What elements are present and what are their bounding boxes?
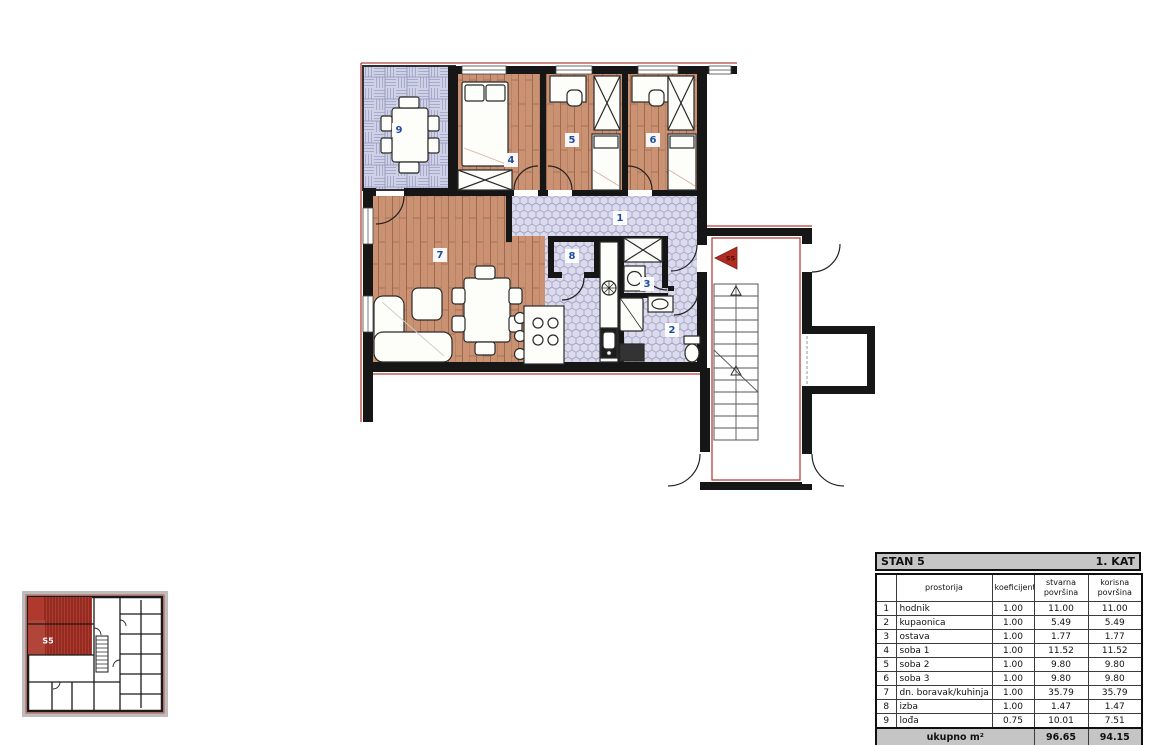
cell: 1.00 xyxy=(992,644,1034,658)
wardrobe-room4 xyxy=(458,170,512,190)
svg-text:7: 7 xyxy=(437,250,444,261)
single-bed-room5 xyxy=(592,134,620,190)
main-floor-plan: S5 1 2 3 4 5 xyxy=(361,63,875,490)
table-row: 1 hodnik 1.00 11.00 11.00 xyxy=(876,602,1142,616)
cell: 7 xyxy=(876,686,896,700)
screenshot-root: S5 1 2 3 4 5 xyxy=(0,0,1164,745)
cell: kupaonica xyxy=(896,616,992,630)
mini-plan-unit-label: S5 xyxy=(42,637,54,646)
room-label-5: 5 xyxy=(565,133,579,147)
total-label: ukupno m² xyxy=(876,728,1034,745)
cell: soba 1 xyxy=(896,644,992,658)
single-bed-room6 xyxy=(668,134,696,190)
cell: soba 2 xyxy=(896,658,992,672)
cell: 5.49 xyxy=(1034,616,1088,630)
unit-title: STAN 5 xyxy=(881,555,925,568)
wardrobe-room5 xyxy=(594,76,620,130)
room-label-3: 3 xyxy=(640,277,654,291)
room-label-1: 1 xyxy=(613,211,627,225)
header-room: prostorija xyxy=(896,574,992,602)
wardrobe-room6 xyxy=(668,76,694,130)
cell: 9.80 xyxy=(1088,672,1142,686)
svg-text:5: 5 xyxy=(569,135,576,146)
cell: 1.00 xyxy=(992,672,1034,686)
washbasin xyxy=(648,296,673,312)
room-label-7: 7 xyxy=(433,248,447,262)
cell: 4 xyxy=(876,644,896,658)
table-row: 9 lođa 0.75 10.01 7.51 xyxy=(876,714,1142,729)
cell: 0.75 xyxy=(992,714,1034,729)
cell: izba xyxy=(896,700,992,714)
cell: 9.80 xyxy=(1088,658,1142,672)
room-label-6: 6 xyxy=(646,133,660,147)
cell: 5 xyxy=(876,658,896,672)
cell: 35.79 xyxy=(1088,686,1142,700)
double-bed xyxy=(462,82,508,166)
coffee-table xyxy=(412,288,442,320)
room-label-9: 9 xyxy=(392,123,406,137)
table-footer-row: ukupno m² 96.65 94.15 xyxy=(876,728,1142,745)
cell: ostava xyxy=(896,630,992,644)
cell: 1.00 xyxy=(992,630,1034,644)
header-coefficient: koeficijent xyxy=(992,574,1034,602)
cell: 1.00 xyxy=(992,686,1034,700)
cell: soba 3 xyxy=(896,672,992,686)
mini-plan-stairs xyxy=(96,636,108,672)
room-label-2: 2 xyxy=(665,323,679,337)
total-usable-area: 94.15 xyxy=(1088,728,1142,745)
table-row: 5 soba 2 1.00 9.80 9.80 xyxy=(876,658,1142,672)
table-row: 7 dn. boravak/kuhinja 1.00 35.79 35.79 xyxy=(876,686,1142,700)
header-usable-area: korisna površina xyxy=(1088,574,1142,602)
cell: 3 xyxy=(876,630,896,644)
area-table: prostorija koeficijent stvarna površina … xyxy=(875,573,1143,745)
mini-plan-highlighted-unit: S5 xyxy=(28,597,92,655)
cell: 9 xyxy=(876,714,896,729)
cell: 8 xyxy=(876,700,896,714)
cell: 1.77 xyxy=(1034,630,1088,644)
cell: 11.52 xyxy=(1034,644,1088,658)
svg-text:2: 2 xyxy=(669,325,676,336)
cell: 2 xyxy=(876,616,896,630)
cell: 10.01 xyxy=(1034,714,1088,729)
toilet xyxy=(684,336,700,362)
cell: 6 xyxy=(876,672,896,686)
table-title-bar: STAN 5 1. KAT xyxy=(875,552,1141,571)
cell: hodnik xyxy=(896,602,992,616)
entrance-marker: S5 xyxy=(715,247,737,269)
corner-cell xyxy=(876,574,896,602)
table-row: 4 soba 1 1.00 11.52 11.52 xyxy=(876,644,1142,658)
cell: 1.00 xyxy=(992,658,1034,672)
header-actual-area: stvarna površina xyxy=(1034,574,1088,602)
entrance-opening xyxy=(697,245,707,272)
cell: 1.47 xyxy=(1034,700,1088,714)
table-row: 8 izba 1.00 1.47 1.47 xyxy=(876,700,1142,714)
hall-closet xyxy=(624,238,662,262)
cell: 1 xyxy=(876,602,896,616)
cell: lođa xyxy=(896,714,992,729)
svg-text:3: 3 xyxy=(644,279,651,290)
kitchen-counter-column xyxy=(600,242,618,362)
table-row: 2 kupaonica 1.00 5.49 5.49 xyxy=(876,616,1142,630)
cell: 1.00 xyxy=(992,602,1034,616)
svg-text:4: 4 xyxy=(508,155,515,166)
table-row: 3 ostava 1.00 1.77 1.77 xyxy=(876,630,1142,644)
svg-text:8: 8 xyxy=(569,251,576,262)
desk-room6 xyxy=(632,76,668,106)
cell: 11.00 xyxy=(1088,602,1142,616)
stairwell xyxy=(714,284,758,440)
room-label-4: 4 xyxy=(504,153,518,167)
cell: dn. boravak/kuhinja xyxy=(896,686,992,700)
room-label-8: 8 xyxy=(565,249,579,263)
cell: 7.51 xyxy=(1088,714,1142,729)
mini-overview-plan: S5 xyxy=(24,593,166,715)
unit-marker-label: S5 xyxy=(726,255,736,263)
cell: 1.77 xyxy=(1088,630,1142,644)
floor-title: 1. KAT xyxy=(1096,555,1135,568)
desk-room5 xyxy=(550,76,586,106)
cell: 9.80 xyxy=(1034,672,1088,686)
svg-text:9: 9 xyxy=(396,125,403,136)
cell: 5.49 xyxy=(1088,616,1142,630)
cell: 1.00 xyxy=(992,700,1034,714)
table-header-row: prostorija koeficijent stvarna površina … xyxy=(876,574,1142,602)
shower xyxy=(620,298,644,361)
cell: 11.52 xyxy=(1088,644,1142,658)
svg-text:1: 1 xyxy=(617,213,624,224)
cell: 1.00 xyxy=(992,616,1034,630)
total-actual-area: 96.65 xyxy=(1034,728,1088,745)
kitchen-peninsula xyxy=(515,306,565,364)
svg-text:6: 6 xyxy=(650,135,657,146)
cell: 35.79 xyxy=(1034,686,1088,700)
cell: 1.47 xyxy=(1088,700,1142,714)
cell: 11.00 xyxy=(1034,602,1088,616)
cell: 9.80 xyxy=(1034,658,1088,672)
table-row: 6 soba 3 1.00 9.80 9.80 xyxy=(876,672,1142,686)
